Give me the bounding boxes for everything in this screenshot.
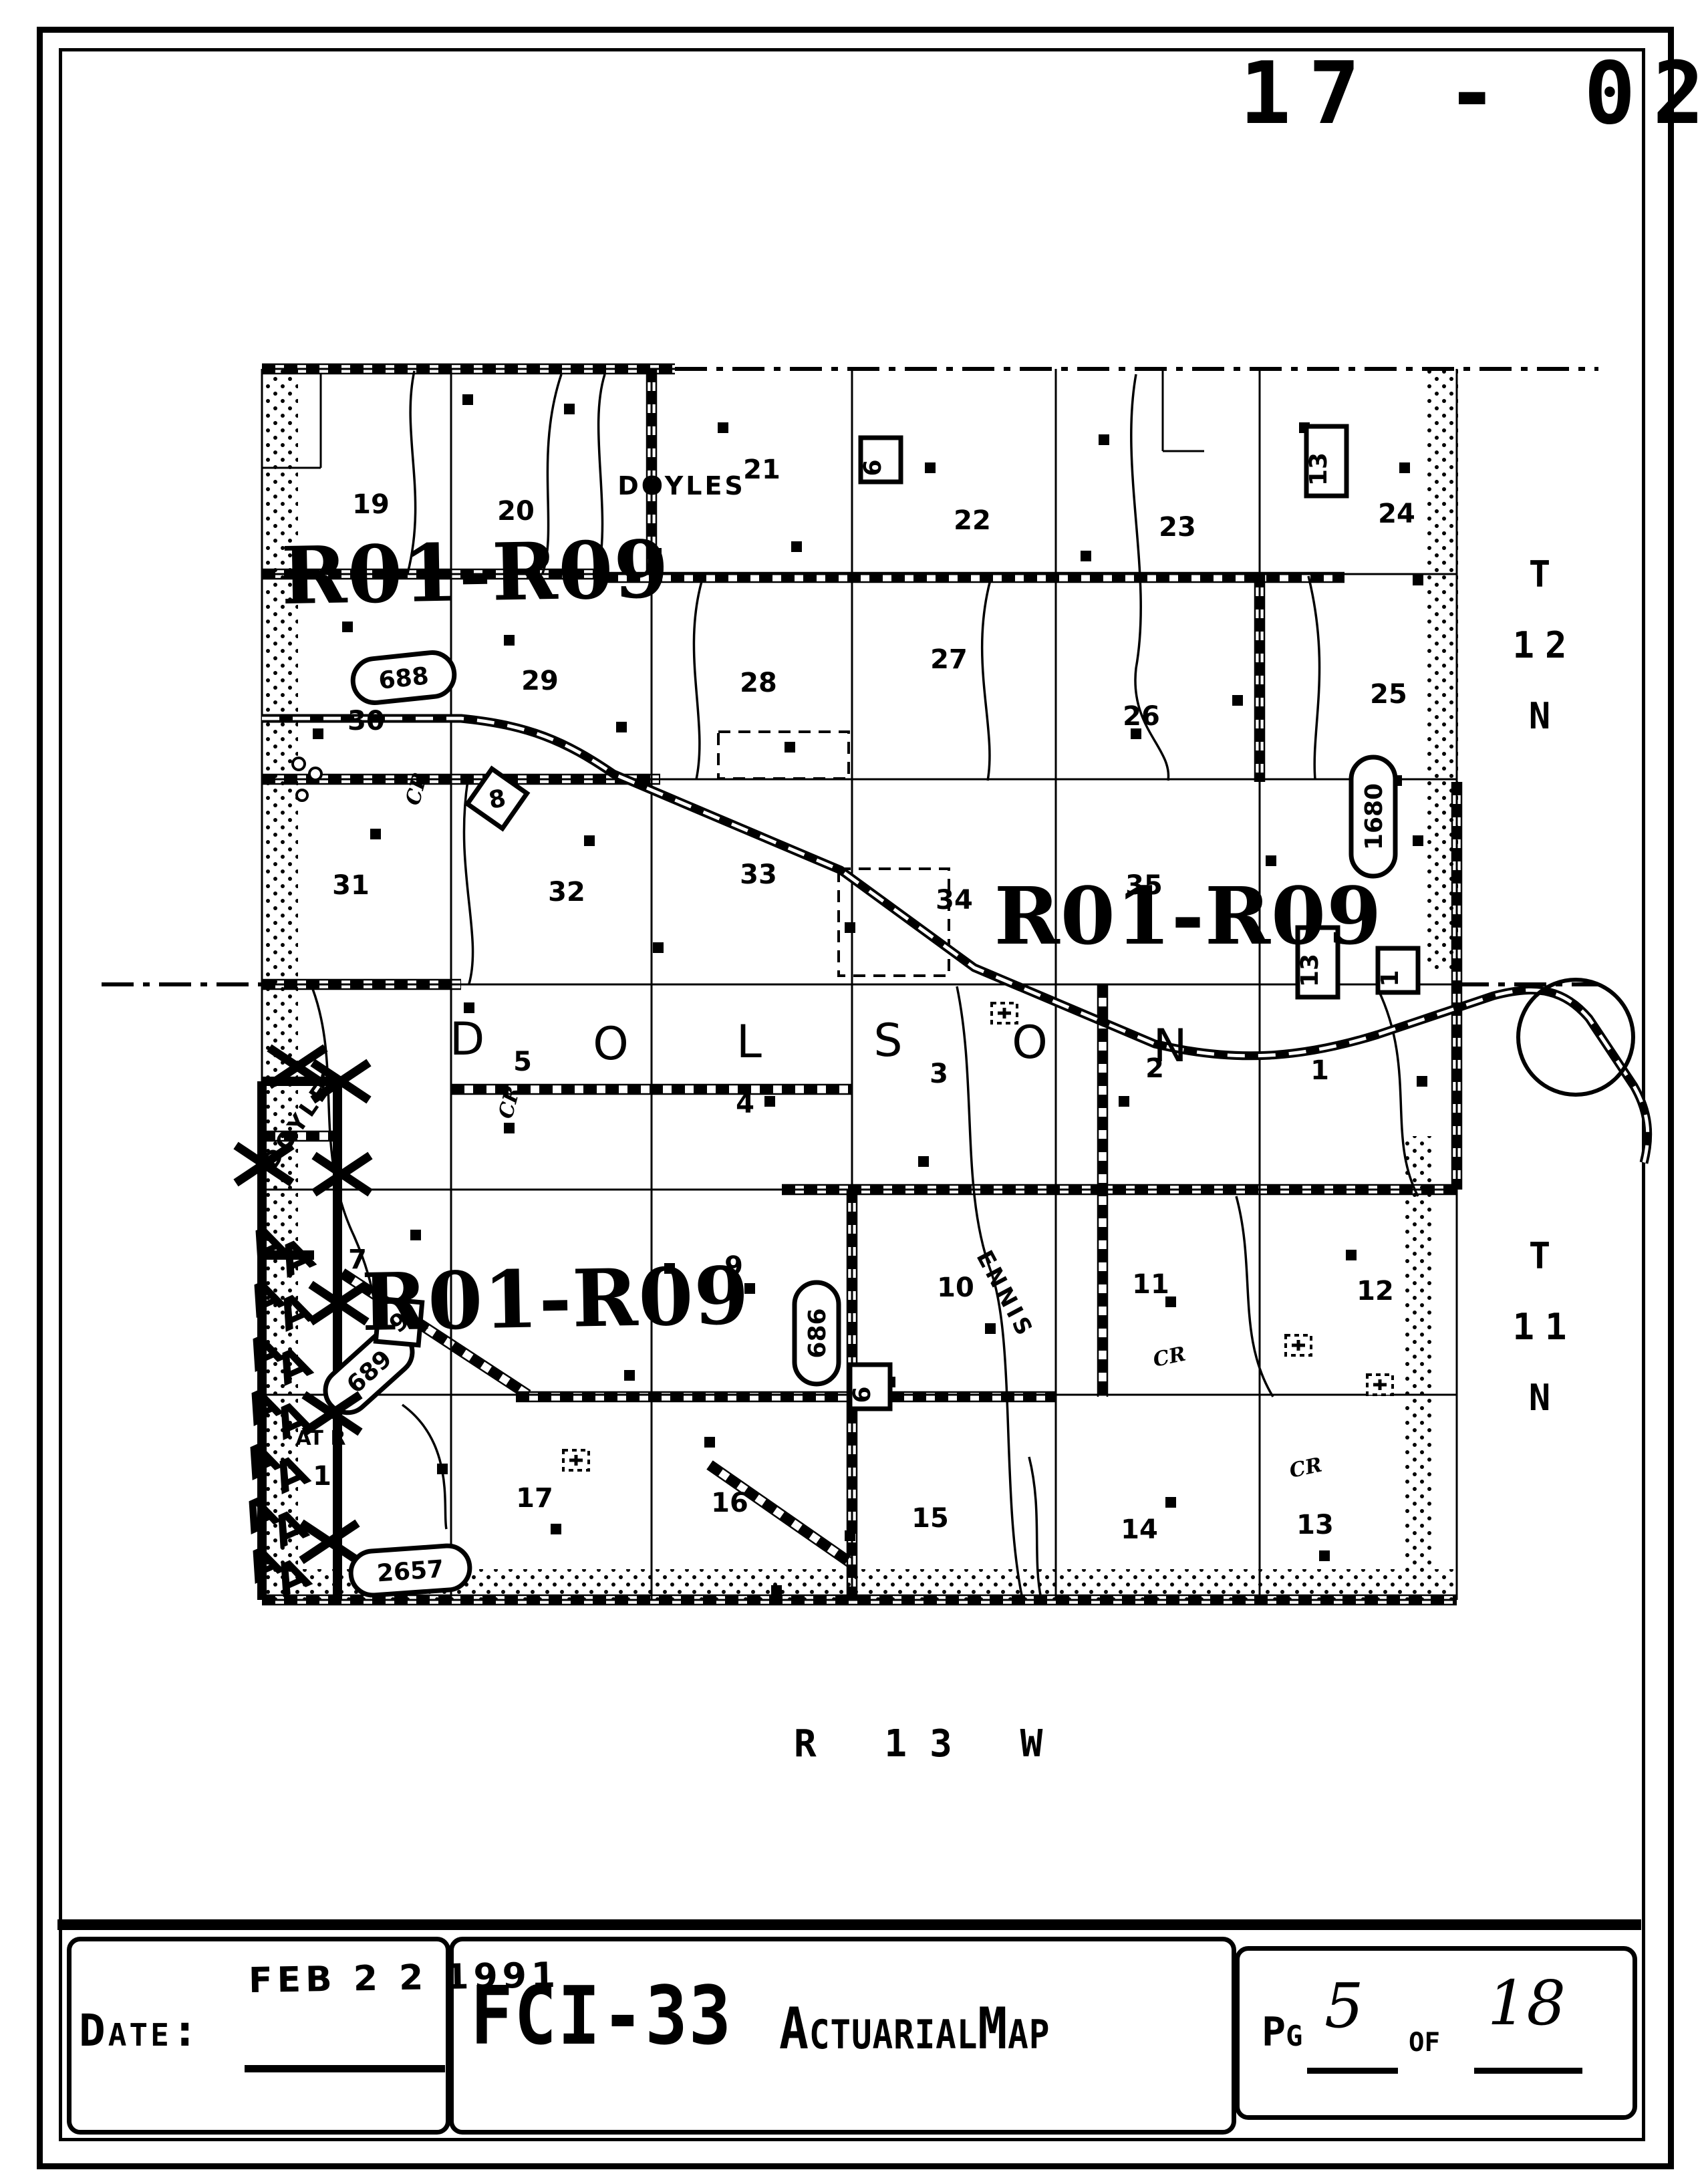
township-name-letter: L [736, 1016, 763, 1069]
building-marker [464, 1002, 474, 1013]
building-marker [1081, 551, 1091, 561]
building-marker [1099, 434, 1109, 445]
date-label: Date: [79, 2005, 201, 2056]
building-marker [845, 922, 855, 933]
map-label: CR [1288, 1454, 1324, 1483]
building-marker [504, 635, 515, 646]
town-circle [1518, 980, 1633, 1095]
township-name-letter: N [1153, 1020, 1189, 1073]
map-label: DOYLES [617, 471, 746, 501]
creek [694, 581, 702, 779]
section-number: 28 [740, 668, 777, 698]
page-total-underline [1474, 2068, 1582, 2074]
section-number: 30 [347, 706, 385, 736]
pond [297, 790, 307, 801]
section-number: 16 [711, 1488, 748, 1518]
section-number: 23 [1159, 512, 1196, 543]
building-marker [1165, 1497, 1176, 1508]
of-label: of [1409, 2017, 1440, 2060]
route-marker-box-number: 13 [1305, 452, 1332, 486]
section-number: 12 [1357, 1276, 1394, 1307]
building-marker [1413, 835, 1423, 846]
building-marker [791, 541, 802, 552]
page-number: 5 [1324, 1970, 1364, 2042]
pond [293, 758, 305, 770]
section-number: 25 [1370, 679, 1407, 710]
svg-text:688: 688 [378, 662, 430, 695]
section-number: 1 [313, 1461, 331, 1492]
map-label: ENNIS [971, 1246, 1039, 1343]
creek [1308, 576, 1320, 779]
section-number: 3 [930, 1059, 948, 1089]
map-label: 21 [743, 454, 781, 485]
route-marker-oval: 688 [351, 650, 456, 705]
building-marker [1413, 575, 1423, 585]
building-marker [771, 1585, 782, 1596]
route-marker-box-number: 6 [849, 1386, 876, 1403]
section-number: 13 [1296, 1510, 1334, 1540]
township-name-letter: D [450, 1013, 486, 1066]
section-number: 29 [521, 666, 559, 696]
dashed-boundary [718, 732, 849, 779]
svg-text:686: 686 [804, 1308, 831, 1358]
actuarial-map: 1920222324302928272625313233343554321791… [0, 0, 1700, 2184]
building-marker [1119, 1096, 1129, 1107]
stipple-band [1402, 1136, 1433, 1600]
building-marker [985, 1323, 996, 1334]
page-label: Pg [1262, 2009, 1302, 2056]
building-marker [764, 1096, 775, 1107]
building-marker [704, 1437, 715, 1448]
rate-area-stamp: R01-R09 [361, 1249, 750, 1349]
building-marker [313, 728, 323, 739]
map-subtitle: ActuarialMap [779, 1996, 1050, 2062]
date-underline [245, 2065, 445, 2072]
section-number: 14 [1121, 1514, 1158, 1545]
building-marker [504, 1123, 515, 1133]
township-label: 12 [1512, 624, 1577, 666]
building-marker [370, 829, 381, 839]
township-label: T [1529, 1235, 1562, 1277]
building-marker [1319, 1550, 1330, 1561]
building-marker [410, 1230, 421, 1240]
township-label: T [1529, 553, 1562, 595]
section-number: 34 [936, 885, 973, 916]
building-marker [785, 742, 795, 753]
building-marker [1417, 1076, 1427, 1087]
township-label: 11 [1512, 1306, 1577, 1348]
section-number: 31 [332, 870, 370, 901]
building-marker [1399, 462, 1410, 473]
building-marker [925, 462, 936, 473]
building-marker [718, 422, 728, 433]
page-total: 18 [1487, 1967, 1566, 2039]
building-marker [584, 835, 595, 846]
township-name-letter: O [1012, 1016, 1049, 1069]
route-marker-oval: 1680 [1351, 757, 1395, 876]
building-marker [342, 622, 353, 632]
building-marker [1232, 695, 1243, 706]
building-marker [551, 1524, 561, 1534]
rate-area-stamp: R01-R09 [994, 869, 1383, 962]
section-number: 10 [937, 1272, 974, 1303]
section-number: 22 [954, 505, 991, 536]
township-name-letter: O [593, 1018, 630, 1071]
township-label: N [1529, 1377, 1562, 1419]
section-number: 4 [736, 1089, 754, 1119]
building-marker [653, 942, 664, 953]
building-marker [1346, 1250, 1357, 1260]
building-marker [1266, 855, 1276, 866]
section-number: 20 [497, 496, 535, 527]
creek [982, 580, 990, 781]
svg-text:1680: 1680 [1361, 783, 1388, 850]
township-name-letter: S [873, 1014, 903, 1067]
creek [1236, 1196, 1273, 1397]
route-marker-oval: 686 [795, 1282, 839, 1384]
rate-area-stamp: R01-R09 [281, 523, 670, 622]
building-marker [918, 1156, 929, 1167]
route-marker-oval: 2657 [349, 1544, 471, 1597]
building-marker [437, 1464, 448, 1474]
section-number: 5 [513, 1047, 532, 1077]
section-number: 33 [740, 859, 777, 890]
pond [309, 768, 321, 780]
section-number: 27 [930, 644, 968, 675]
building-marker [564, 404, 575, 414]
section-number: 19 [352, 489, 390, 520]
route-marker-box-number: 1 [1377, 970, 1404, 986]
section-number: 11 [1132, 1269, 1169, 1300]
section-number: 32 [548, 877, 585, 908]
section-number: 1 [1310, 1055, 1329, 1086]
building-marker [462, 394, 473, 405]
section-number: 15 [911, 1503, 949, 1534]
building-marker [616, 722, 627, 732]
building-marker [624, 1370, 635, 1381]
township-label: N [1529, 695, 1562, 737]
section-number: 26 [1123, 701, 1160, 732]
page-number-underline [1307, 2068, 1398, 2074]
route-marker-box-number: 6 [859, 459, 887, 476]
creek [464, 781, 472, 984]
building-marker [845, 1530, 855, 1541]
section-number: 17 [516, 1483, 553, 1514]
footer-divider [57, 1919, 1641, 1930]
map-label: CR [1151, 1343, 1188, 1372]
svg-text:2657: 2657 [376, 1556, 445, 1588]
range-label: R 13 W [794, 1722, 1065, 1766]
section-number: 24 [1378, 499, 1415, 529]
map-title: FCI-33 [470, 1970, 732, 2063]
